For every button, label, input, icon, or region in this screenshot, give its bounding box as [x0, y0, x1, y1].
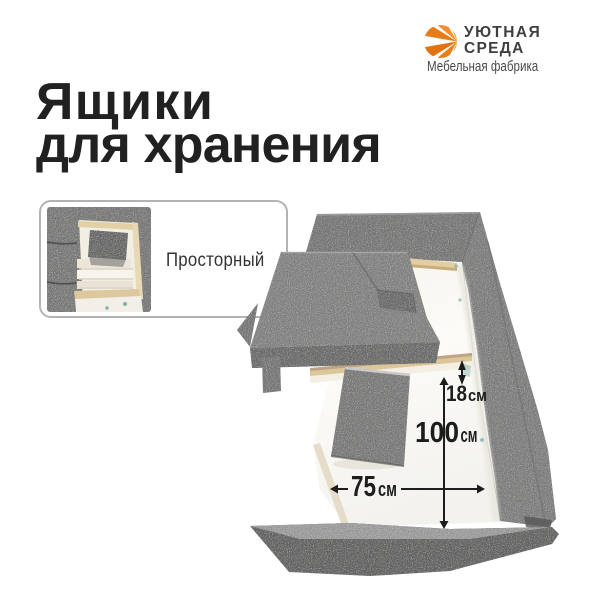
svg-text:см: см	[468, 386, 487, 405]
svg-text:см: см	[378, 479, 397, 501]
svg-text:75: 75	[351, 471, 376, 503]
svg-text:см: см	[461, 425, 478, 447]
svg-text:100: 100	[415, 417, 459, 449]
svg-text:18: 18	[446, 381, 467, 406]
